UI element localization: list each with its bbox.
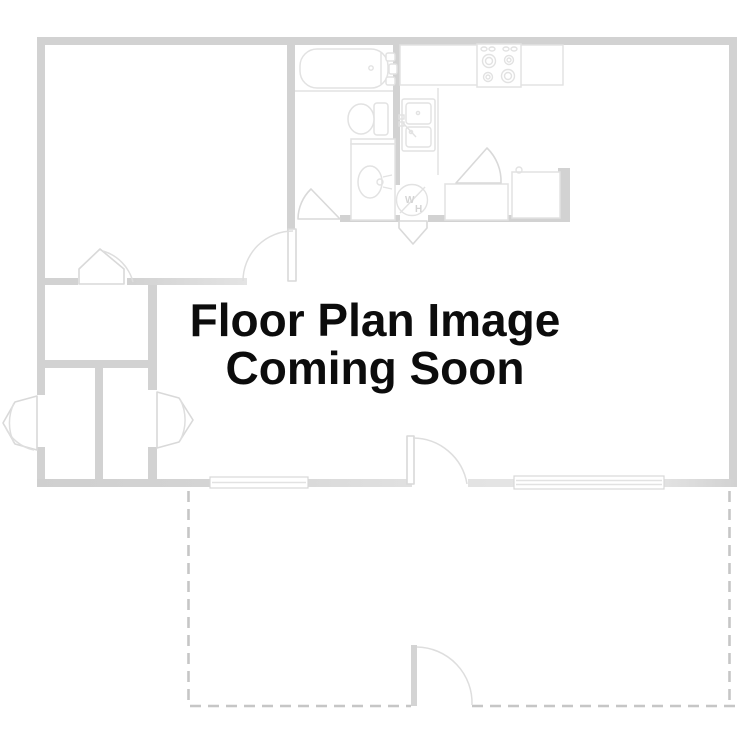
fridge-body	[512, 172, 560, 218]
window-right	[514, 476, 664, 489]
bathroom-door	[298, 189, 340, 219]
bathtub-faucet-top	[386, 53, 395, 61]
patio-outline	[189, 491, 736, 706]
wall-right	[729, 45, 737, 487]
toilet-tank	[374, 103, 388, 135]
closet-door-left	[3, 396, 37, 450]
stove-icon	[477, 44, 521, 87]
bedroom-door-leaf	[288, 229, 296, 281]
bedroom-door-arc	[243, 231, 293, 281]
washer-heater-label-w: W	[405, 195, 415, 206]
wall-top	[37, 37, 737, 45]
kitchen-sink-icon	[399, 99, 435, 151]
toilet-icon	[348, 104, 374, 134]
bathtub-icon	[300, 49, 388, 88]
patio-door-arc	[413, 438, 467, 484]
kitchen-cabinet	[445, 184, 508, 220]
interior-walls	[37, 45, 570, 479]
bathtub-faucet-bottom	[386, 77, 395, 85]
washer-heater-label-h: H	[415, 204, 422, 215]
floor-plan-placeholder: W H	[0, 0, 750, 750]
patio-gate-arc	[417, 647, 472, 705]
wall-bathroom-left	[287, 45, 295, 222]
bathtub-spout	[389, 64, 397, 74]
placeholder-title-line2: Coming Soon	[0, 344, 750, 392]
kitchen	[399, 44, 563, 220]
wall-closet-right-lower	[148, 447, 157, 479]
patio-door-leaf	[407, 436, 414, 484]
placeholder-title: Floor Plan Image Coming Soon	[0, 296, 750, 392]
patio-gate-leaf	[411, 645, 417, 706]
placeholder-title-line1: Floor Plan Image	[0, 296, 750, 344]
sink-unit	[402, 99, 435, 151]
kitchen-entry-door	[456, 148, 501, 183]
washer-heater-closet: W H	[397, 185, 428, 245]
wall-bedroom-bottom-right	[127, 278, 247, 285]
washer-closet-door	[399, 221, 427, 244]
wall-bedroom-bottom-left	[37, 278, 78, 285]
bathroom-sink-icon	[358, 166, 382, 198]
bedroom-closet-door	[79, 249, 124, 284]
closet-door-right	[157, 392, 193, 448]
fridge-icon	[512, 167, 560, 218]
patio-door-opening	[412, 478, 468, 488]
